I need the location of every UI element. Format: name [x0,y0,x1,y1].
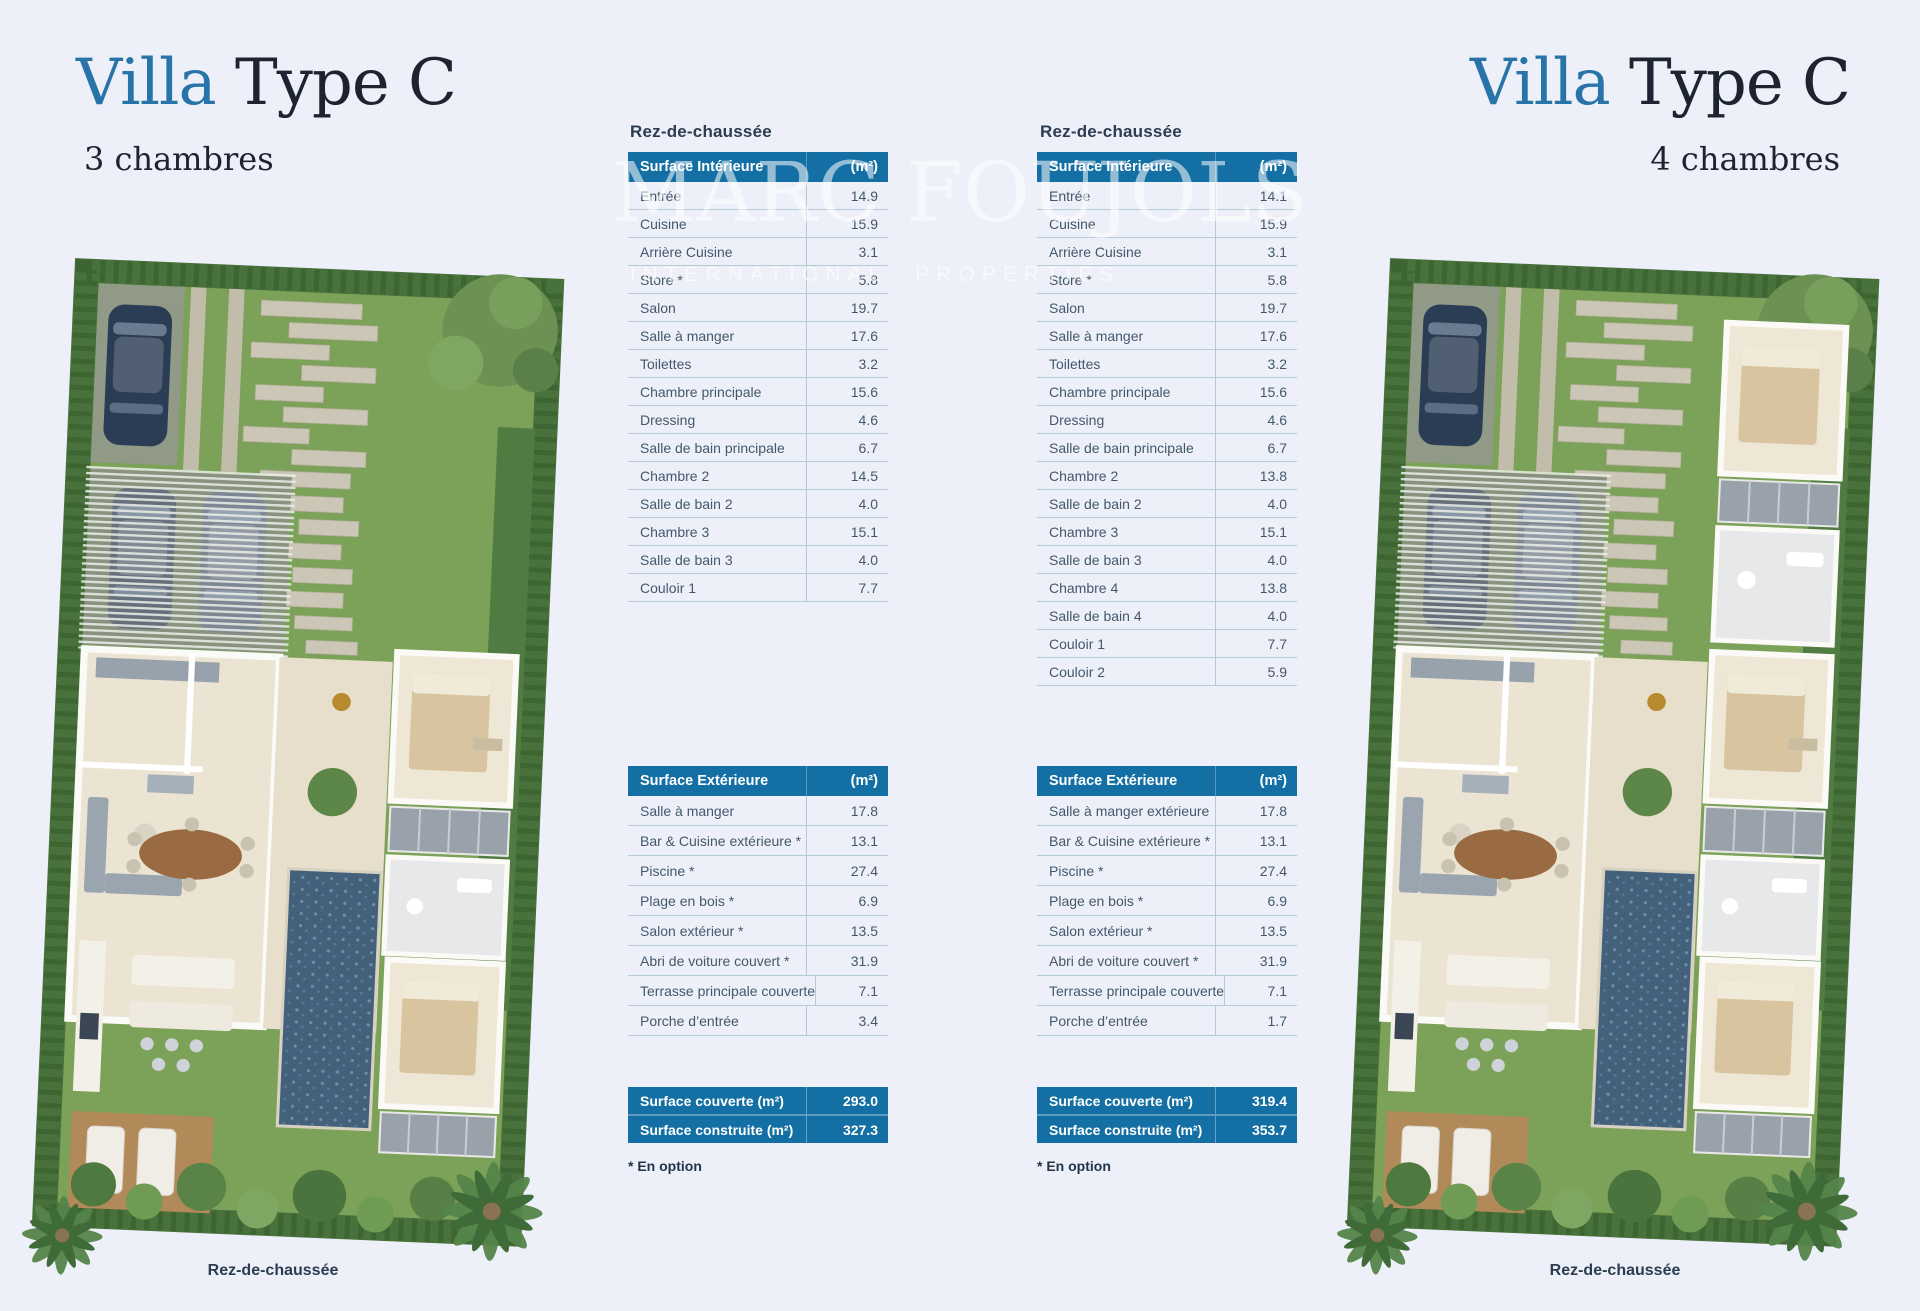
row-label: Salle de bain principale [628,434,806,461]
row-label: Abri de voiture couvert * [628,946,806,975]
row-value: 4.0 [1215,546,1297,573]
title-word-villa: Villa [1470,46,1610,120]
table-header-unit: (m²) [806,152,888,182]
table-row: Cuisine15.9 [628,210,888,238]
table-row: Cuisine15.9 [1037,210,1297,238]
table-row: Chambre principale15.6 [1037,378,1297,406]
table-header-unit: (m²) [806,766,888,796]
row-value: 13.1 [806,826,888,855]
table-row: Piscine *27.4 [1037,856,1297,886]
row-value: 327.3 [806,1116,888,1143]
row-value: 17.6 [806,322,888,349]
table-header: Surface Intérieure (m²) [1037,152,1297,182]
plan-caption-right: Rez-de-chaussée [1505,1262,1725,1280]
row-value: 14.1 [1215,182,1297,209]
title-word-type: Type C [216,46,456,120]
row-label: Salle de bain 3 [628,546,806,573]
row-label: Chambre 3 [628,518,806,545]
table-row: Porche d’entrée3.4 [628,1006,888,1036]
table-header-label: Surface Intérieure [628,152,806,182]
row-value: 7.7 [1215,630,1297,657]
row-label: Dressing [628,406,806,433]
table-row: Abri de voiture couvert *31.9 [628,946,888,976]
row-value: 4.0 [1215,490,1297,517]
row-value: 4.6 [1215,406,1297,433]
row-label: Porche d’entrée [628,1006,806,1035]
table-row: Toilettes3.2 [628,350,888,378]
row-label: Chambre principale [1037,378,1215,405]
table-row: Entrée14.9 [628,182,888,210]
row-value: 6.9 [806,886,888,915]
row-label: Store * [1037,266,1215,293]
row-value: 17.8 [806,796,888,825]
table-body: Surface couverte (m²)319.4Surface constr… [1037,1087,1297,1143]
row-value: 5.8 [806,266,888,293]
table-row: Chambre 413.8 [1037,574,1297,602]
table-row: Entrée14.1 [1037,182,1297,210]
row-label: Bar & Cuisine extérieure * [628,826,806,855]
plan-caption-left: Rez-de-chaussée [163,1262,383,1280]
row-label: Surface construite (m²) [1037,1116,1215,1143]
page-title-right: Villa Type C [1470,46,1850,120]
row-label: Abri de voiture couvert * [1037,946,1215,975]
row-value: 15.9 [1215,210,1297,237]
table-row: Store *5.8 [628,266,888,294]
table-row: Plage en bois *6.9 [1037,886,1297,916]
row-value: 4.0 [806,546,888,573]
table-header-label: Surface Extérieure [628,766,806,796]
row-label: Salle à manger [628,796,806,825]
row-label: Store * [628,266,806,293]
row-value: 5.8 [1215,266,1297,293]
row-label: Salon extérieur * [1037,916,1215,945]
row-label: Plage en bois * [1037,886,1215,915]
table-row: Dressing4.6 [628,406,888,434]
row-label: Piscine * [628,856,806,885]
row-value: 3.2 [806,350,888,377]
row-value: 13.5 [806,916,888,945]
table-row: Surface couverte (m²)319.4 [1037,1087,1297,1116]
table-row: Salle à manger17.6 [1037,322,1297,350]
footnote-left: * En option [628,1158,702,1174]
row-value: 4.6 [806,406,888,433]
table-body: Entrée14.1Cuisine15.9Arrière Cuisine3.1S… [1037,182,1297,686]
row-label: Surface construite (m²) [628,1116,806,1143]
table-row: Dressing4.6 [1037,406,1297,434]
table-row: Chambre principale15.6 [628,378,888,406]
table-body: Surface couverte (m²)293.0Surface constr… [628,1087,888,1143]
table-row: Arrière Cuisine3.1 [1037,238,1297,266]
row-value: 6.9 [1215,886,1297,915]
row-label: Arrière Cuisine [628,238,806,265]
table-row: Piscine *27.4 [628,856,888,886]
table-row: Chambre 214.5 [628,462,888,490]
row-value: 4.0 [1215,602,1297,629]
row-label: Dressing [1037,406,1215,433]
row-label: Entrée [628,182,806,209]
table-row: Bar & Cuisine extérieure *13.1 [1037,826,1297,856]
page-subtitle-left: 3 chambres [84,140,274,178]
exterior-surface-table-right: Surface Extérieure (m²) Salle à manger e… [1037,766,1297,1036]
row-value: 1.7 [1215,1006,1297,1035]
table-row: Chambre 315.1 [1037,518,1297,546]
row-label: Couloir 2 [1037,658,1215,685]
table-row: Abri de voiture couvert *31.9 [1037,946,1297,976]
row-label: Plage en bois * [628,886,806,915]
row-value: 3.1 [1215,238,1297,265]
row-label: Salon [1037,294,1215,321]
row-value: 353.7 [1215,1116,1297,1143]
page-subtitle-right: 4 chambres [1650,140,1840,178]
row-label: Salle de bain 4 [1037,602,1215,629]
table-row: Terrasse principale couverte7.1 [1037,976,1297,1006]
row-label: Cuisine [628,210,806,237]
table-row: Salle de bain 24.0 [1037,490,1297,518]
table-row: Couloir 17.7 [628,574,888,602]
table-row: Salle à manger17.6 [628,322,888,350]
table-row: Salon extérieur *13.5 [628,916,888,946]
title-word-villa: Villa [76,46,216,120]
row-value: 27.4 [1215,856,1297,885]
interior-surface-table-left: Surface Intérieure (m²) Entrée14.9Cuisin… [628,152,888,602]
table-header: Surface Extérieure (m²) [1037,766,1297,796]
table-row: Couloir 17.7 [1037,630,1297,658]
row-label: Salle à manger [628,322,806,349]
section-heading-right: Rez-de-chaussée [1040,122,1182,142]
row-value: 15.9 [806,210,888,237]
row-value: 15.1 [1215,518,1297,545]
row-value: 15.6 [806,378,888,405]
row-label: Couloir 1 [1037,630,1215,657]
table-body: Salle à manger17.8Bar & Cuisine extérieu… [628,796,888,1036]
table-row: Chambre 315.1 [628,518,888,546]
row-label: Piscine * [1037,856,1215,885]
row-value: 3.1 [806,238,888,265]
row-value: 13.5 [1215,916,1297,945]
table-row: Porche d’entrée1.7 [1037,1006,1297,1036]
summary-table-left: Surface couverte (m²)293.0Surface constr… [628,1087,888,1143]
row-value: 31.9 [806,946,888,975]
exterior-surface-table-left: Surface Extérieure (m²) Salle à manger17… [628,766,888,1036]
table-header-label: Surface Extérieure [1037,766,1215,796]
table-row: Salon19.7 [628,294,888,322]
table-row: Couloir 25.9 [1037,658,1297,686]
row-label: Salon extérieur * [628,916,806,945]
table-row: Store *5.8 [1037,266,1297,294]
row-value: 13.1 [1215,826,1297,855]
row-value: 31.9 [1215,946,1297,975]
row-value: 19.7 [806,294,888,321]
brochure-page: Villa Type C 3 chambres Villa Type C 4 c… [0,0,1920,1311]
row-value: 15.1 [806,518,888,545]
row-value: 319.4 [1215,1087,1297,1114]
row-label: Entrée [1037,182,1215,209]
row-value: 6.7 [1215,434,1297,461]
table-header-unit: (m²) [1215,766,1297,796]
table-body: Salle à manger extérieure17.8Bar & Cuisi… [1037,796,1297,1036]
row-value: 5.9 [1215,658,1297,685]
row-label: Surface couverte (m²) [628,1087,806,1114]
row-label: Terrasse principale couverte [628,976,815,1005]
floor-plan-3-chambres [30,258,565,1273]
row-label: Salle de bain 3 [1037,546,1215,573]
row-value: 7.1 [1224,976,1297,1005]
table-row: Salle à manger17.8 [628,796,888,826]
row-label: Porche d’entrée [1037,1006,1215,1035]
row-value: 27.4 [806,856,888,885]
table-row: Salle de bain principale6.7 [628,434,888,462]
title-word-type: Type C [1610,46,1850,120]
row-label: Terrasse principale couverte [1037,976,1224,1005]
row-label: Chambre principale [628,378,806,405]
table-row: Salon19.7 [1037,294,1297,322]
row-label: Toilettes [628,350,806,377]
floor-plan-4-chambres [1345,258,1880,1273]
summary-table-right: Surface couverte (m²)319.4Surface constr… [1037,1087,1297,1143]
row-label: Chambre 2 [628,462,806,489]
interior-surface-table-right: Surface Intérieure (m²) Entrée14.1Cuisin… [1037,152,1297,686]
table-row: Salon extérieur *13.5 [1037,916,1297,946]
table-row: Bar & Cuisine extérieure *13.1 [628,826,888,856]
row-value: 4.0 [806,490,888,517]
row-label: Arrière Cuisine [1037,238,1215,265]
row-label: Salon [628,294,806,321]
table-header: Surface Extérieure (m²) [628,766,888,796]
table-header: Surface Intérieure (m²) [628,152,888,182]
row-label: Toilettes [1037,350,1215,377]
row-label: Cuisine [1037,210,1215,237]
table-row: Salle à manger extérieure17.8 [1037,796,1297,826]
table-row: Arrière Cuisine3.1 [628,238,888,266]
row-value: 19.7 [1215,294,1297,321]
row-value: 3.4 [806,1006,888,1035]
table-row: Terrasse principale couverte7.1 [628,976,888,1006]
table-row: Salle de bain principale6.7 [1037,434,1297,462]
row-label: Bar & Cuisine extérieure * [1037,826,1215,855]
row-value: 3.2 [1215,350,1297,377]
table-row: Plage en bois *6.9 [628,886,888,916]
row-label: Salle à manger [1037,322,1215,349]
row-value: 7.1 [815,976,888,1005]
table-header-label: Surface Intérieure [1037,152,1215,182]
row-value: 14.9 [806,182,888,209]
section-heading-left: Rez-de-chaussée [630,122,772,142]
row-value: 17.6 [1215,322,1297,349]
row-label: Couloir 1 [628,574,806,601]
row-value: 13.8 [1215,574,1297,601]
table-header-unit: (m²) [1215,152,1297,182]
table-body: Entrée14.9Cuisine15.9Arrière Cuisine3.1S… [628,182,888,602]
row-value: 15.6 [1215,378,1297,405]
row-label: Chambre 3 [1037,518,1215,545]
row-value: 14.5 [806,462,888,489]
table-row: Salle de bain 34.0 [1037,546,1297,574]
row-value: 7.7 [806,574,888,601]
row-label: Salle de bain 2 [628,490,806,517]
table-row: Chambre 213.8 [1037,462,1297,490]
row-value: 17.8 [1215,796,1297,825]
table-row: Toilettes3.2 [1037,350,1297,378]
footnote-right: * En option [1037,1158,1111,1174]
row-label: Surface couverte (m²) [1037,1087,1215,1114]
row-label: Salle à manger extérieure [1037,796,1215,825]
table-row: Salle de bain 44.0 [1037,602,1297,630]
page-title-left: Villa Type C [76,46,456,120]
table-row: Surface construite (m²)353.7 [1037,1116,1297,1143]
row-value: 6.7 [806,434,888,461]
row-label: Chambre 2 [1037,462,1215,489]
row-value: 293.0 [806,1087,888,1114]
row-label: Chambre 4 [1037,574,1215,601]
table-row: Surface construite (m²)327.3 [628,1116,888,1143]
table-row: Salle de bain 34.0 [628,546,888,574]
row-label: Salle de bain 2 [1037,490,1215,517]
table-row: Surface couverte (m²)293.0 [628,1087,888,1116]
row-label: Salle de bain principale [1037,434,1215,461]
row-value: 13.8 [1215,462,1297,489]
table-row: Salle de bain 24.0 [628,490,888,518]
